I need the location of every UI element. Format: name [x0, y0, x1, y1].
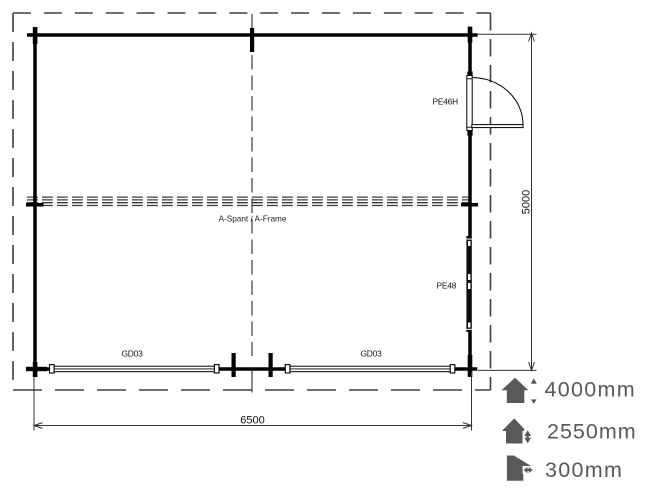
svg-text:PE48: PE48: [437, 280, 457, 290]
svg-text:GD03: GD03: [121, 348, 143, 358]
svg-text:PE46H: PE46H: [432, 96, 458, 106]
svg-text:5000: 5000: [521, 190, 533, 214]
svg-text:2550mm: 2550mm: [547, 419, 637, 443]
svg-text:6500: 6500: [240, 415, 264, 427]
svg-text:A-Spant / A-Frame: A-Spant / A-Frame: [219, 215, 287, 224]
svg-text:300mm: 300mm: [545, 458, 623, 482]
svg-text:GD03: GD03: [360, 348, 382, 358]
svg-text:4000mm: 4000mm: [545, 377, 636, 401]
